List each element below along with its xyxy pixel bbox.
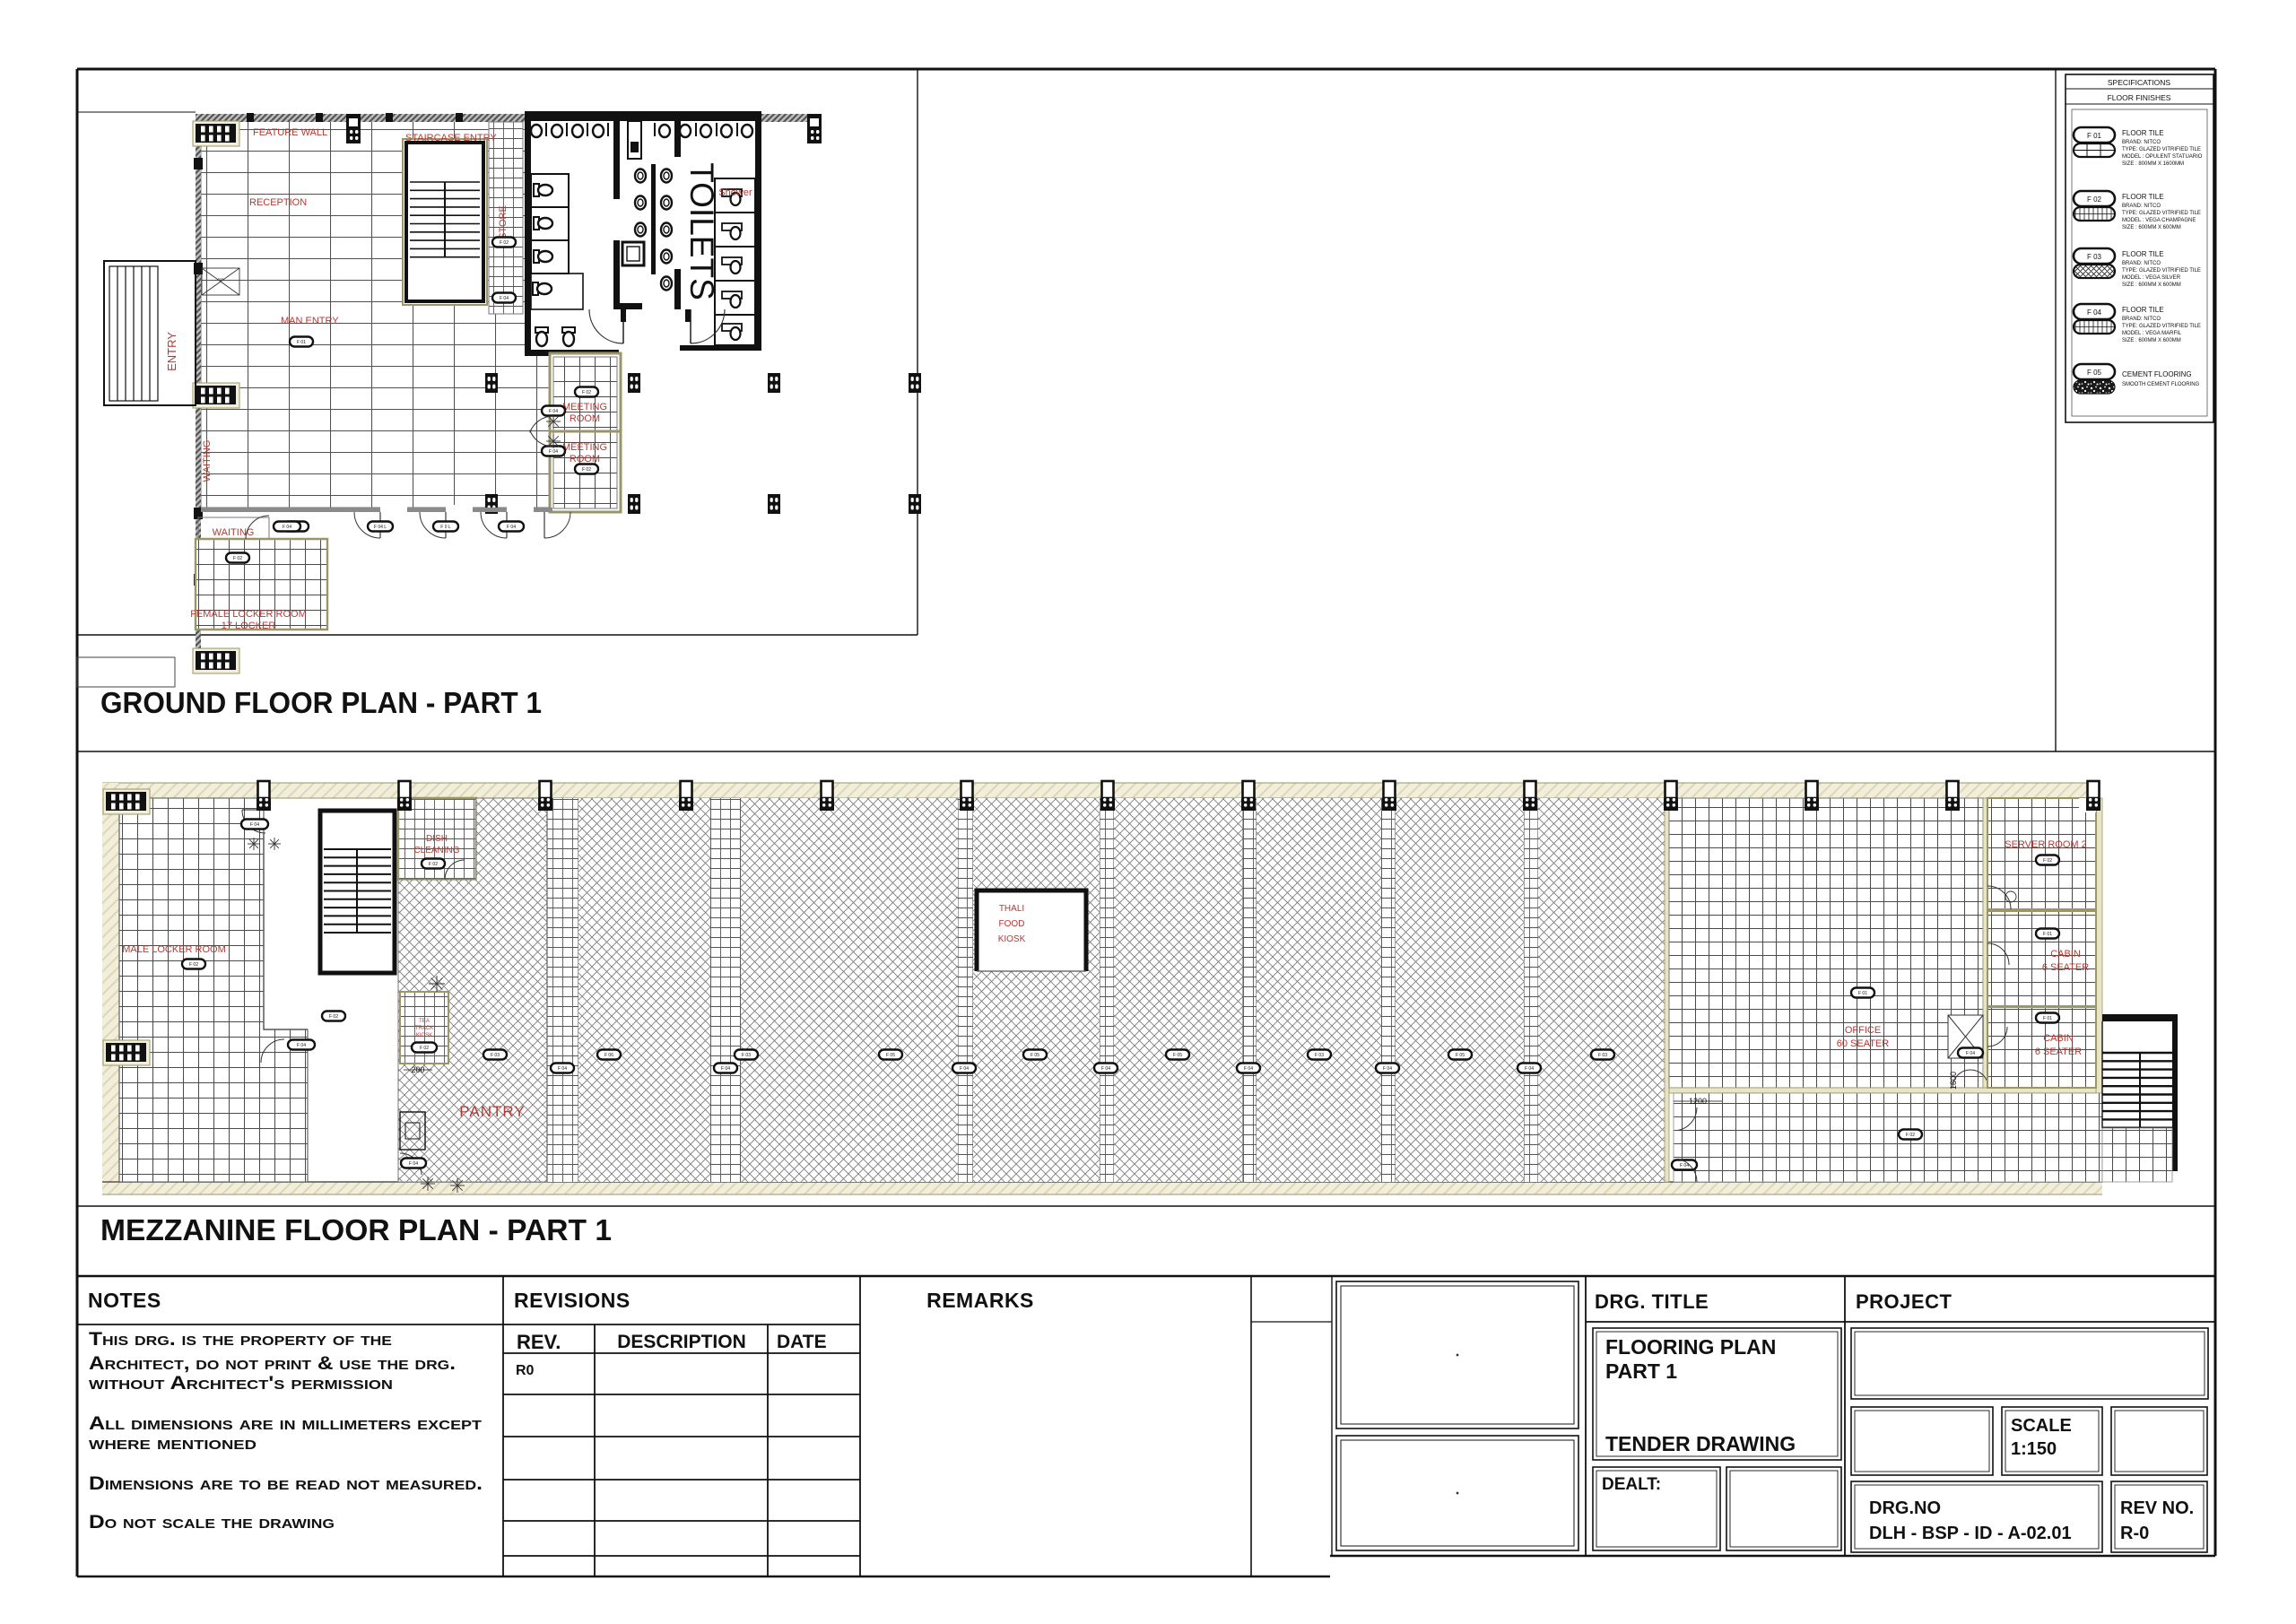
svg-text:F 03: F 03	[491, 1053, 500, 1058]
svg-text:FLOOR TILE: FLOOR TILE	[2122, 306, 2164, 314]
svg-text:1:150: 1:150	[2011, 1439, 2057, 1459]
svg-text:OFFICE: OFFICE	[1845, 1025, 1881, 1036]
svg-text:F 05: F 05	[1031, 1053, 1039, 1058]
svg-text:F 04: F 04	[1525, 1066, 1534, 1072]
svg-text:TEA: TEA	[419, 1019, 430, 1024]
svg-text:F 04: F 04	[549, 409, 558, 414]
svg-text:TENDER DRAWING: TENDER DRAWING	[1605, 1432, 1796, 1455]
svg-text:BRAND: NITCO: BRAND: NITCO	[2122, 140, 2161, 145]
svg-text:REVISIONS: REVISIONS	[514, 1289, 631, 1312]
svg-text:F 02: F 02	[429, 862, 438, 867]
svg-text:F 01: F 01	[1858, 991, 1867, 996]
svg-text:SIZE : 600MM X 600MM: SIZE : 600MM X 600MM	[2122, 282, 2181, 288]
svg-text:DLH - BSP - ID - A-02.01: DLH - BSP - ID - A-02.01	[1869, 1524, 2072, 1543]
svg-text:DRG.NO: DRG.NO	[1869, 1498, 1941, 1518]
svg-text:ENTRY: ENTRY	[165, 332, 178, 371]
svg-text:CEMENT FLOORING: CEMENT FLOORING	[2122, 370, 2192, 378]
svg-text:DISH: DISH	[426, 834, 448, 844]
svg-text:DRG. TITLE: DRG. TITLE	[1595, 1290, 1709, 1313]
svg-text:DESCRIPTION: DESCRIPTION	[617, 1332, 746, 1352]
svg-text:REV NO.: REV NO.	[2120, 1498, 2194, 1518]
svg-text:FLOOR FINISHES: FLOOR FINISHES	[2108, 93, 2171, 102]
svg-text:F 02: F 02	[582, 467, 591, 473]
svg-text:M.M: M.M	[218, 277, 223, 281]
svg-text:F 02: F 02	[2087, 195, 2102, 204]
svg-text:FOOD: FOOD	[999, 919, 1025, 929]
svg-text:DEALT:: DEALT:	[1602, 1475, 1661, 1494]
svg-text:F 04: F 04	[1101, 1066, 1110, 1072]
svg-text:SIZE : 800MM X 1600MM: SIZE : 800MM X 1600MM	[2122, 161, 2184, 167]
svg-text:F 04: F 04	[1383, 1066, 1392, 1072]
svg-text:BRAND: NITCO: BRAND: NITCO	[2122, 261, 2161, 266]
svg-text:17 LOCKER: 17 LOCKER	[222, 621, 276, 631]
svg-text:TYPE: GLAZED VITRIFIED TILE: TYPE: GLAZED VITRIFIED TILE	[2122, 211, 2201, 216]
svg-text:6 SEATER: 6 SEATER	[2035, 1046, 2082, 1057]
svg-text:F 02: F 02	[500, 240, 509, 246]
svg-text:All dimensions are in millimet: All dimensions are in millimeters except	[89, 1413, 482, 1434]
svg-text:MODEL : VEGA SILVER: MODEL : VEGA SILVER	[2122, 275, 2181, 281]
svg-text:F 04: F 04	[549, 449, 558, 455]
svg-text:SIZE : 600MM X 600MM: SIZE : 600MM X 600MM	[2122, 338, 2181, 343]
svg-text:F 02: F 02	[1906, 1133, 1915, 1138]
svg-text:1800: 1800	[1949, 1072, 1958, 1090]
svg-text:F 04: F 04	[1680, 1163, 1689, 1168]
svg-text:CABIN: CABIN	[2050, 949, 2081, 960]
svg-text:F 04 L: F 04 L	[374, 525, 387, 530]
svg-text:KIOSK: KIOSK	[416, 1033, 432, 1038]
svg-text:R0: R0	[516, 1363, 535, 1378]
svg-text:60 SEATER: 60 SEATER	[1837, 1038, 1890, 1049]
svg-text:F 04: F 04	[1966, 1051, 1975, 1056]
svg-text:CABIN: CABIN	[2043, 1033, 2074, 1044]
svg-text:Dimensions are to be read not: Dimensions are to be read not measured.	[89, 1473, 483, 1494]
svg-text:MODEL : OPULENT STATUARIO: MODEL : OPULENT STATUARIO	[2122, 154, 2203, 160]
svg-text:MEZZANINE FLOOR PLAN - PART 1: MEZZANINE FLOOR PLAN - PART 1	[100, 1213, 612, 1246]
svg-text:DATE: DATE	[777, 1332, 827, 1352]
svg-text:F 02: F 02	[420, 1046, 429, 1051]
svg-text:MODEL : VEGA CHAMPAGNE: MODEL : VEGA CHAMPAGNE	[2122, 218, 2196, 223]
svg-text:F 01: F 01	[2087, 132, 2102, 140]
svg-text:SMOOTH CEMENT FLOORING: SMOOTH CEMENT FLOORING	[2122, 382, 2200, 387]
svg-text:FLOOR TILE: FLOOR TILE	[2122, 193, 2164, 201]
svg-text:R-0: R-0	[2120, 1524, 2149, 1543]
svg-text:FLOOR TILE: FLOOR TILE	[2122, 129, 2164, 137]
svg-text:STAIRCASE ENTRY: STAIRCASE ENTRY	[405, 133, 497, 143]
svg-text:CLEANING: CLEANING	[413, 846, 459, 855]
svg-text:F 02: F 02	[582, 390, 591, 395]
svg-text:F 04: F 04	[250, 822, 259, 828]
svg-text:SCALE: SCALE	[2011, 1416, 2072, 1436]
svg-text:MODEL : VEGA MARFIL: MODEL : VEGA MARFIL	[2122, 331, 2182, 336]
svg-text:NOTES: NOTES	[88, 1289, 161, 1312]
svg-text:F 01: F 01	[2043, 932, 2052, 937]
svg-text:F 03: F 03	[1598, 1053, 1607, 1058]
svg-text:MALE LOCKER ROOM: MALE LOCKER ROOM	[122, 944, 226, 955]
svg-text:F 03: F 03	[1315, 1053, 1324, 1058]
svg-text:F 04: F 04	[558, 1066, 567, 1072]
svg-text:BRAND: NITCO: BRAND: NITCO	[2122, 204, 2161, 209]
svg-text:F 04: F 04	[409, 1161, 418, 1167]
svg-text:STORE: STORE	[498, 205, 509, 239]
svg-text:RECEPTION: RECEPTION	[249, 197, 307, 208]
svg-text:F 05: F 05	[2087, 369, 2102, 377]
svg-text:F 02: F 02	[233, 556, 242, 561]
svg-text:F 02: F 02	[329, 1014, 338, 1020]
svg-text:F 05: F 05	[1456, 1053, 1465, 1058]
svg-text:KIOSK: KIOSK	[998, 934, 1026, 944]
svg-text:F 0 L: F 0 L	[440, 525, 451, 530]
svg-text:F 04: F 04	[507, 525, 516, 530]
svg-text:FLOOR TILE: FLOOR TILE	[2122, 250, 2164, 258]
svg-text:F 04: F 04	[2087, 308, 2102, 317]
svg-text:6 SEATER: 6 SEATER	[2042, 962, 2089, 973]
svg-text:REV.: REV.	[517, 1331, 561, 1353]
svg-text:TRACK: TRACK	[415, 1026, 433, 1031]
svg-text:ROOM: ROOM	[570, 413, 600, 424]
svg-text:MEETING: MEETING	[562, 402, 607, 413]
svg-text:TOILETS: TOILETS	[683, 162, 720, 300]
svg-text:WAITING: WAITING	[202, 440, 213, 482]
svg-text:without Architect's permission: without Architect's permission	[89, 1373, 393, 1394]
svg-text:F 04: F 04	[283, 525, 291, 530]
svg-text:SERVER ROOM 2: SERVER ROOM 2	[2005, 839, 2087, 850]
svg-text:where mentioned: where mentioned	[89, 1433, 257, 1454]
svg-text:TYPE: GLAZED VITRIFIED TILE: TYPE: GLAZED VITRIFIED TILE	[2122, 324, 2201, 329]
svg-text:F 02: F 02	[2043, 858, 2052, 864]
svg-text:F 02: F 02	[189, 962, 198, 968]
svg-text:FEMALE LOCKER ROOM: FEMALE LOCKER ROOM	[190, 609, 307, 620]
svg-text:SPECIFICATIONS: SPECIFICATIONS	[2108, 78, 2171, 87]
svg-text:PANTRY: PANTRY	[459, 1103, 525, 1120]
svg-text:TYPE: GLAZED VITRIFIED TILE: TYPE: GLAZED VITRIFIED TILE	[2122, 268, 2201, 274]
svg-text:F 04: F 04	[721, 1066, 730, 1072]
svg-text:F 05: F 05	[886, 1053, 895, 1058]
svg-text:F 05: F 05	[1173, 1053, 1182, 1058]
svg-text:SIZE : 600MM X 600MM: SIZE : 600MM X 600MM	[2122, 225, 2181, 230]
svg-text:PROJECT: PROJECT	[1856, 1290, 1952, 1313]
svg-text:MAN ENTRY: MAN ENTRY	[281, 316, 339, 326]
svg-text:F 03: F 03	[742, 1053, 751, 1058]
svg-text:MEETING: MEETING	[562, 442, 607, 453]
svg-text:BRAND: NITCO: BRAND: NITCO	[2122, 317, 2161, 322]
svg-text:F 04: F 04	[297, 1043, 306, 1048]
svg-text:Do not scale the drawing: Do not scale the drawing	[89, 1512, 335, 1533]
svg-text:FEATURE WALL: FEATURE WALL	[253, 127, 327, 138]
svg-text:REMARKS: REMARKS	[926, 1289, 1034, 1312]
svg-text:F 04: F 04	[960, 1066, 969, 1072]
svg-text:F 01: F 01	[2043, 1016, 2052, 1021]
svg-text:F 03: F 03	[2087, 253, 2102, 261]
svg-text:F 06: F 06	[604, 1053, 613, 1058]
svg-text:THALI: THALI	[999, 904, 1024, 914]
svg-text:ROOM: ROOM	[570, 454, 600, 465]
svg-text:Architect, do not print & use: Architect, do not print & use the drg.	[89, 1353, 456, 1374]
svg-text:TYPE: GLAZED VITRIFIED TILE: TYPE: GLAZED VITRIFIED TILE	[2122, 147, 2201, 152]
svg-text:Shower: Shower	[718, 187, 752, 198]
svg-text:F 04: F 04	[500, 296, 509, 301]
svg-text:This drg. is the property of t: This drg. is the property of the	[89, 1329, 392, 1350]
svg-text:PART 1: PART 1	[1605, 1359, 1677, 1383]
svg-text:F 01: F 01	[297, 340, 306, 345]
svg-text:F 04: F 04	[1244, 1066, 1253, 1072]
svg-text:FLOORING PLAN: FLOORING PLAN	[1605, 1335, 1776, 1359]
svg-text:GROUND FLOOR PLAN - PART 1: GROUND FLOOR PLAN - PART 1	[100, 686, 542, 719]
